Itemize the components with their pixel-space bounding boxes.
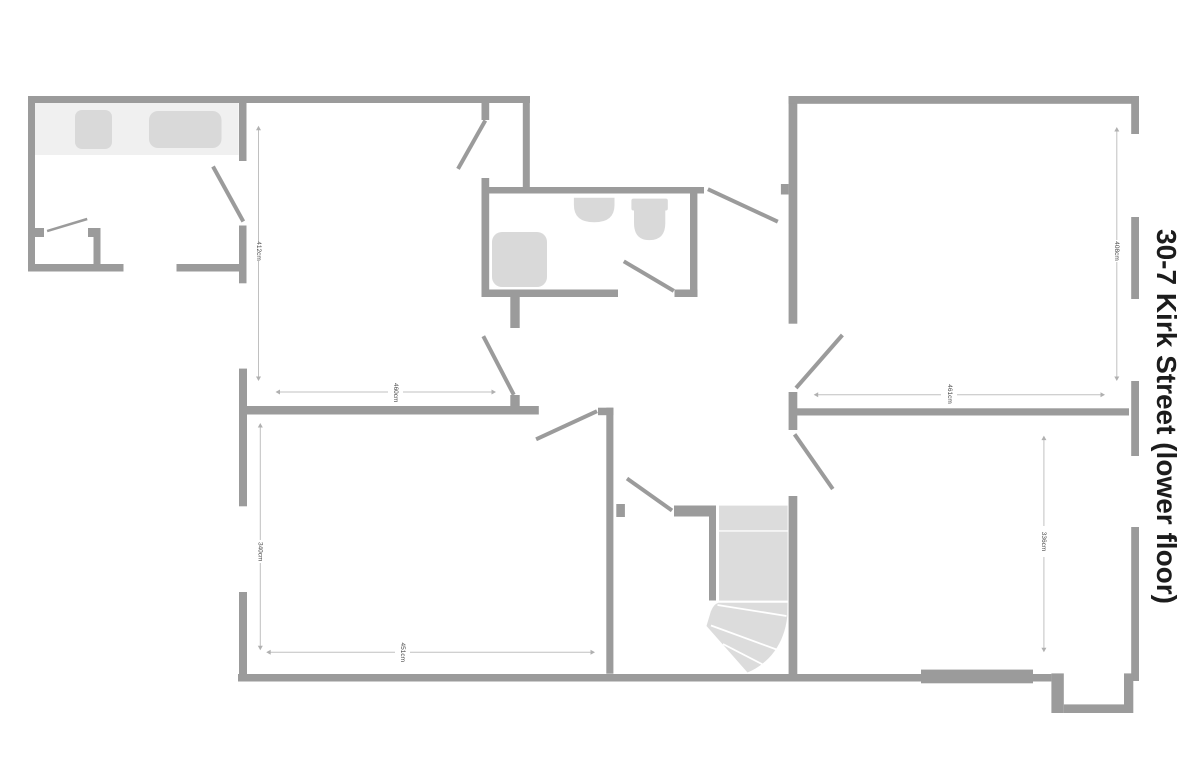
- svg-text:412cm: 412cm: [255, 241, 262, 261]
- svg-text:451cm: 451cm: [399, 643, 406, 663]
- svg-text:336cm: 336cm: [1040, 532, 1047, 552]
- svg-text:408cm: 408cm: [1113, 241, 1120, 261]
- svg-text:461cm: 461cm: [946, 384, 953, 404]
- svg-text:30-7 Kirk Street (lower floor): 30-7 Kirk Street (lower floor): [1151, 229, 1182, 604]
- svg-text:340cm: 340cm: [257, 542, 264, 562]
- svg-text:460cm: 460cm: [392, 383, 399, 403]
